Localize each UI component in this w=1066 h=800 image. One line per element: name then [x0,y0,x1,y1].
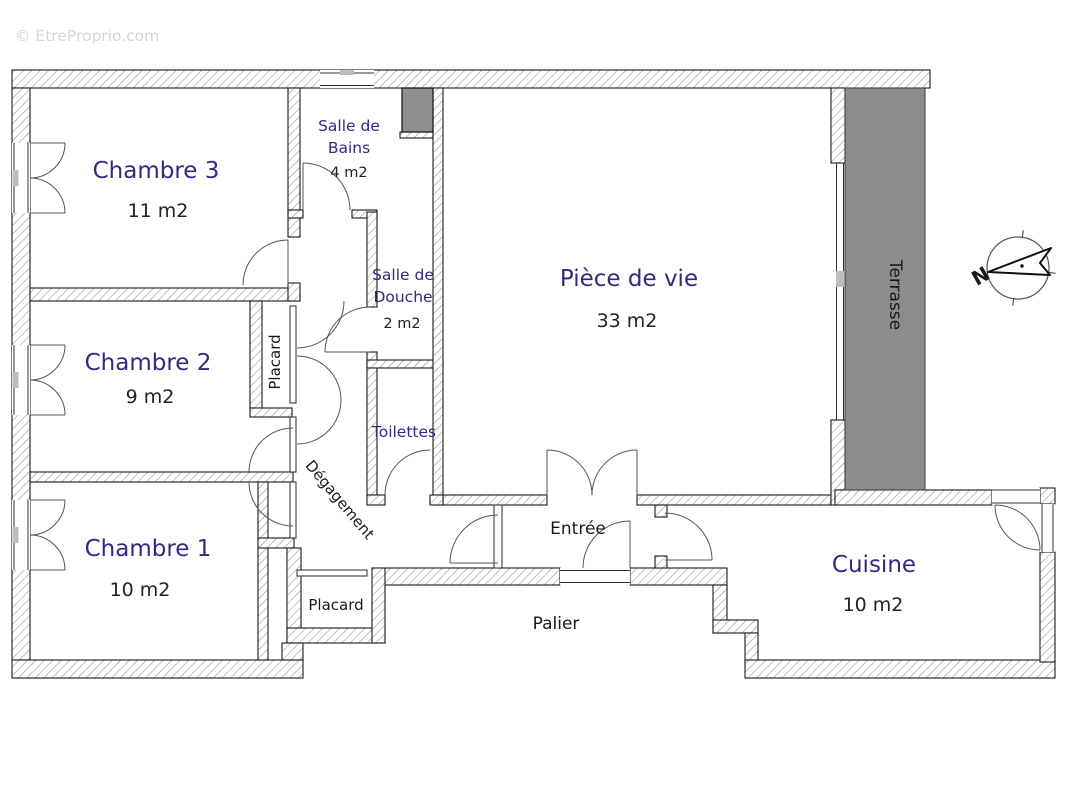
room-label-salle-de-bains-1: Salle de [318,117,380,135]
room-label-placard-upper: Placard [266,334,284,389]
area-label-piece-de-vie: 33 m2 [597,310,658,332]
thin-walls-layer [290,306,502,576]
room-label-chambre-3: Chambre 3 [93,158,220,184]
room-label-toilettes: Toilettes [371,423,436,441]
area-label-salle-de-douche: 2 m2 [383,316,420,332]
area-label-chambre-2: 9 m2 [126,386,175,408]
area-label-chambre-1: 10 m2 [110,579,171,601]
area-label-cuisine: 10 m2 [843,594,904,616]
terrasse-area [845,88,925,490]
room-label-salle-de-douche-1: Salle de [372,266,434,284]
area-label-salle-de-bains: 4 m2 [330,165,367,181]
duct-shaft [402,88,433,132]
room-label-salle-de-douche-2: Douche [373,288,432,306]
north-arrow-icon [988,248,1051,275]
floor-plan: N © EtreProprio.com Chambre 3 11 m2 Sall… [0,0,1066,800]
labels-layer: © EtreProprio.com Chambre 3 11 m2 Salle … [15,27,916,634]
doors-layer [243,163,712,568]
area-label-chambre-3: 11 m2 [128,200,189,222]
room-label-piece-de-vie: Pièce de vie [560,266,698,292]
room-label-chambre-2: Chambre 2 [85,350,212,376]
room-label-entree: Entrée [550,519,606,539]
watermark: © EtreProprio.com [15,27,159,45]
room-label-palier: Palier [533,614,580,634]
compass-north-label: N [967,261,994,290]
room-label-placard-lower: Placard [308,596,363,614]
room-label-terrasse: Terrasse [885,259,905,330]
room-label-cuisine: Cuisine [832,552,916,578]
room-label-salle-de-bains-2: Bains [328,139,370,157]
compass: N [967,230,1061,311]
room-label-chambre-1: Chambre 1 [85,536,212,562]
